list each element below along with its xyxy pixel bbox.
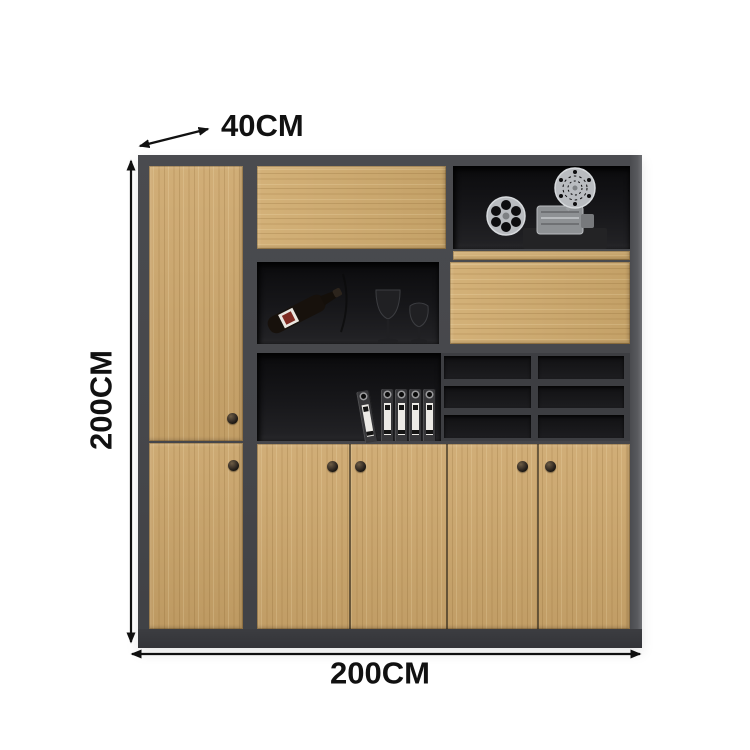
file-binder [381, 389, 394, 441]
pigeonhole-cell [444, 415, 531, 438]
shelf-front-edge [453, 251, 630, 260]
pigeonhole-cell [538, 356, 625, 379]
middle-cabinet-door [450, 262, 630, 344]
left-upper-door [149, 166, 243, 441]
bottom-doors [257, 444, 630, 629]
wine-shelf-opening [257, 262, 439, 344]
left-upper-door-knob [227, 413, 238, 424]
pigeonhole-cell [444, 356, 531, 379]
pigeonhole-cell [538, 415, 625, 438]
door-seam [446, 444, 448, 629]
pigeonhole-cell [538, 386, 625, 409]
width-dimension-label: 200CM [330, 658, 430, 689]
projector-shelf-opening [453, 166, 630, 249]
film-reel-right [555, 168, 595, 208]
wine-glass-small [410, 303, 428, 343]
wine-bottle [265, 283, 345, 336]
pigeonhole-cell [444, 386, 531, 409]
wine-glass-large [376, 290, 400, 344]
height-dimension-label: 200CM [86, 350, 117, 450]
filing-cabinet [138, 155, 642, 648]
left-lower-door-knob [228, 460, 239, 471]
cabinet-side-panel [630, 155, 642, 648]
product-image: 40CM 200CM 200CM [0, 0, 750, 750]
left-lower-door [149, 443, 243, 629]
file-binder [356, 390, 378, 443]
binder-shelf-opening [257, 353, 441, 441]
door-seam [537, 444, 539, 629]
file-binder [409, 389, 422, 441]
depth-dimension-label: 40CM [221, 110, 304, 141]
bottom-door-knob [545, 461, 556, 472]
door-seam [349, 444, 351, 629]
file-binder [423, 389, 436, 441]
bottom-door-knob [517, 461, 528, 472]
pigeonhole-grid [441, 353, 630, 441]
bottom-door-knob [355, 461, 366, 472]
top-cabinet-door [257, 166, 446, 249]
film-projector [453, 166, 630, 249]
depth-arrow [140, 129, 208, 146]
film-reel-left [487, 197, 525, 235]
cabinet-plinth [138, 629, 642, 648]
wine-decor [257, 262, 439, 344]
bottom-door-knob [327, 461, 338, 472]
file-binder [395, 389, 408, 441]
